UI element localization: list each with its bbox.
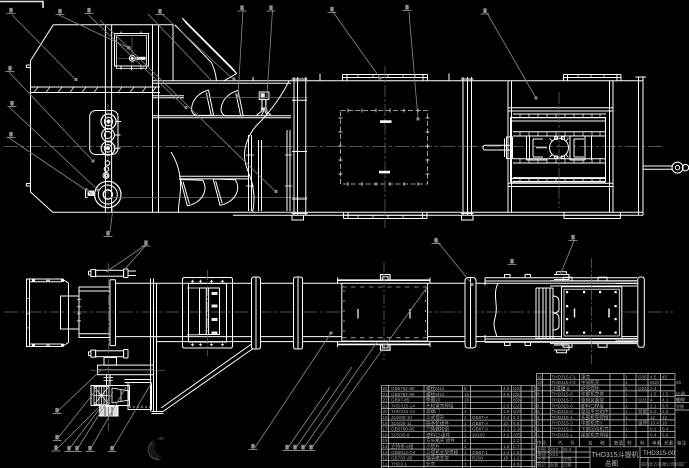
svg-text:1: 1 bbox=[464, 432, 467, 437]
svg-text:Q23: Q23 bbox=[513, 403, 522, 408]
svg-text:8.4: 8.4 bbox=[662, 427, 669, 432]
svg-text:3: 3 bbox=[537, 421, 540, 426]
svg-text:45: 45 bbox=[676, 380, 682, 385]
svg-text:1: 1 bbox=[464, 415, 467, 420]
svg-text:Q23: Q23 bbox=[638, 398, 647, 403]
svg-text:1: 1 bbox=[625, 380, 628, 385]
svg-text:1: 1 bbox=[464, 461, 467, 466]
svg-text:2.4: 2.4 bbox=[650, 386, 657, 391]
svg-text:6.4: 6.4 bbox=[650, 432, 657, 437]
svg-text:1: 1 bbox=[464, 403, 467, 408]
svg-text:20: 20 bbox=[383, 409, 389, 414]
svg-text:1.2: 1.2 bbox=[513, 456, 520, 461]
svg-text:Q23: Q23 bbox=[513, 409, 522, 414]
svg-text:65M: 65M bbox=[513, 398, 522, 403]
svg-text:GB5782-86: GB5782-86 bbox=[391, 386, 415, 391]
svg-text:14: 14 bbox=[383, 444, 389, 449]
svg-text:1.6: 1.6 bbox=[503, 409, 510, 414]
svg-text:5.2: 5.2 bbox=[650, 409, 657, 414]
svg-text:1: 1 bbox=[625, 432, 628, 437]
svg-text:1: 1 bbox=[464, 421, 467, 426]
svg-text:21: 21 bbox=[383, 403, 389, 408]
svg-text:05.6: 05.6 bbox=[563, 447, 572, 452]
svg-text:THD315-7: THD315-7 bbox=[552, 398, 574, 403]
svg-text:GB8T-A: GB8T-A bbox=[472, 415, 489, 420]
svg-text:8: 8 bbox=[537, 392, 540, 397]
svg-text:THD315-2: THD315-2 bbox=[552, 427, 574, 432]
svg-text:205: 205 bbox=[513, 432, 521, 437]
svg-text:1: 1 bbox=[625, 409, 628, 414]
svg-text:数量: 数量 bbox=[614, 440, 624, 447]
svg-text:备注: 备注 bbox=[677, 440, 687, 447]
svg-text:6: 6 bbox=[537, 403, 540, 408]
svg-text:24: 24 bbox=[383, 386, 389, 391]
svg-text:M10: M10 bbox=[650, 380, 659, 385]
svg-text:标记: 标记 bbox=[538, 462, 547, 468]
svg-text:4.1: 4.1 bbox=[662, 398, 669, 403]
svg-text:垫圈: 垫圈 bbox=[676, 403, 684, 409]
svg-text:1.2: 1.2 bbox=[513, 438, 520, 443]
svg-text:总图: 总图 bbox=[605, 459, 618, 468]
svg-text:总重: 总重 bbox=[664, 440, 674, 446]
svg-text:外壳: 外壳 bbox=[426, 460, 436, 467]
svg-text:1: 1 bbox=[625, 415, 628, 420]
svg-text:GB97-85: GB97-85 bbox=[391, 398, 410, 403]
svg-text:材: 材 bbox=[627, 440, 632, 446]
svg-text:GB8T-1: GB8T-1 bbox=[472, 450, 488, 455]
svg-text:1.5: 1.5 bbox=[662, 392, 669, 397]
svg-text:装配: 装配 bbox=[638, 408, 648, 415]
svg-text:称: 称 bbox=[600, 440, 605, 447]
svg-text:2: 2 bbox=[464, 427, 467, 432]
svg-text:5: 5 bbox=[537, 409, 540, 414]
svg-text:4: 4 bbox=[464, 438, 467, 443]
svg-text:18: 18 bbox=[383, 421, 389, 426]
svg-text:1: 1 bbox=[625, 398, 628, 403]
svg-text:2: 2 bbox=[625, 386, 628, 391]
svg-text:THD315-4: THD315-4 bbox=[552, 415, 574, 420]
svg-text:THD315-00: THD315-00 bbox=[643, 450, 676, 457]
svg-text:THD315-1: THD315-1 bbox=[552, 432, 574, 437]
svg-text:2.1: 2.1 bbox=[650, 403, 657, 408]
svg-text:1.5: 1.5 bbox=[650, 392, 657, 397]
svg-text:尾部机壳焊接: 尾部机壳焊接 bbox=[581, 431, 609, 438]
svg-text:THD315-14: THD315-14 bbox=[391, 403, 415, 408]
svg-text:0.7: 0.7 bbox=[513, 444, 520, 449]
svg-text:2.10: 2.10 bbox=[513, 427, 522, 432]
svg-text:11: 11 bbox=[383, 461, 388, 466]
svg-text:THD2-1: THD2-1 bbox=[391, 461, 408, 466]
svg-text:1: 1 bbox=[464, 409, 467, 414]
svg-text:4: 4 bbox=[650, 398, 653, 403]
svg-text:4: 4 bbox=[537, 415, 540, 420]
svg-text:22: 22 bbox=[383, 398, 389, 403]
svg-text:1: 1 bbox=[464, 456, 467, 461]
svg-text:1.5: 1.5 bbox=[503, 444, 510, 449]
svg-text:12: 12 bbox=[662, 415, 668, 420]
svg-text:处数: 处数 bbox=[550, 462, 559, 468]
svg-text:16: 16 bbox=[383, 432, 389, 437]
svg-text:6.2: 6.2 bbox=[513, 415, 520, 420]
svg-text:1: 1 bbox=[464, 450, 467, 455]
svg-text:日期: 日期 bbox=[563, 463, 571, 468]
svg-text:19: 19 bbox=[383, 415, 389, 420]
svg-text:序号: 序号 bbox=[537, 440, 547, 447]
svg-text:16: 16 bbox=[464, 398, 470, 403]
svg-text:4.8: 4.8 bbox=[503, 386, 510, 391]
svg-text:1.6: 1.6 bbox=[513, 450, 520, 455]
svg-text:11: 11 bbox=[537, 374, 542, 379]
svg-text:GB5782-86: GB5782-86 bbox=[391, 392, 415, 397]
svg-text:代: 代 bbox=[558, 440, 563, 447]
svg-text:4.6: 4.6 bbox=[513, 461, 520, 466]
svg-text:10: 10 bbox=[537, 380, 543, 385]
svg-text:2.6: 2.6 bbox=[662, 409, 669, 414]
svg-text:GB5780-86: GB5780-86 bbox=[391, 427, 415, 432]
svg-text:1: 1 bbox=[625, 374, 628, 379]
svg-text:8: 8 bbox=[464, 386, 467, 391]
svg-text:THD315-3: THD315-3 bbox=[552, 421, 574, 426]
svg-text:THD315-5: THD315-5 bbox=[552, 409, 574, 414]
svg-text:7: 7 bbox=[537, 398, 540, 403]
svg-text:GB8812-C4: GB8812-C4 bbox=[391, 450, 416, 455]
svg-text:Q23: Q23 bbox=[513, 386, 522, 391]
svg-text:8.2: 8.2 bbox=[650, 427, 657, 432]
svg-text:1: 1 bbox=[464, 444, 467, 449]
svg-text:13: 13 bbox=[383, 450, 389, 455]
svg-text:315GB-11: 315GB-11 bbox=[391, 421, 412, 426]
svg-text:组焊: 组焊 bbox=[638, 420, 648, 427]
svg-text:12: 12 bbox=[650, 415, 656, 420]
svg-text:料: 料 bbox=[640, 440, 645, 447]
svg-text:20100: 20100 bbox=[472, 432, 485, 437]
svg-text:GB8T-A: GB8T-A bbox=[472, 427, 489, 432]
svg-text:或向北方有限公司制造厂: 或向北方有限公司制造厂 bbox=[641, 461, 687, 468]
svg-text:Q23: Q23 bbox=[513, 392, 522, 397]
svg-text:R200: R200 bbox=[472, 456, 483, 461]
svg-text:315GB-10: 315GB-10 bbox=[391, 415, 412, 420]
svg-text:2: 2 bbox=[537, 427, 540, 432]
svg-text:1: 1 bbox=[625, 421, 628, 426]
svg-text:10: 10 bbox=[662, 421, 668, 426]
svg-text:8.5: 8.5 bbox=[662, 403, 669, 408]
svg-text:Q23: Q23 bbox=[638, 386, 647, 391]
svg-text:THD315-13: THD315-13 bbox=[391, 409, 415, 414]
svg-text:12: 12 bbox=[383, 456, 389, 461]
svg-text:名: 名 bbox=[588, 440, 593, 447]
svg-text:THD315斗提机: THD315斗提机 bbox=[592, 450, 639, 459]
svg-text:10.4: 10.4 bbox=[650, 421, 659, 426]
svg-text:GB703-2B: GB703-2B bbox=[391, 456, 412, 461]
svg-text:10: 10 bbox=[503, 421, 509, 426]
svg-text:15: 15 bbox=[383, 438, 389, 443]
svg-text:Q35: Q35 bbox=[638, 374, 647, 379]
svg-text:1: 1 bbox=[537, 432, 540, 437]
svg-text:4.2: 4.2 bbox=[503, 432, 510, 437]
svg-text:10: 10 bbox=[503, 456, 509, 461]
svg-text:3.2: 3.2 bbox=[503, 415, 510, 420]
svg-text:1: 1 bbox=[625, 427, 628, 432]
svg-text:3.4: 3.4 bbox=[503, 450, 510, 455]
svg-text:THD315-F1: THD315-F1 bbox=[552, 374, 576, 379]
svg-text:315GB-9: 315GB-9 bbox=[391, 432, 410, 437]
svg-text:23: 23 bbox=[383, 392, 389, 397]
svg-text:GB8T-A: GB8T-A bbox=[472, 421, 489, 426]
svg-text:4.5: 4.5 bbox=[650, 374, 657, 379]
svg-text:16: 16 bbox=[464, 392, 470, 397]
svg-text:1: 1 bbox=[625, 392, 628, 397]
svg-text:1.2: 1.2 bbox=[503, 427, 510, 432]
svg-text:THD315-F2: THD315-F2 bbox=[552, 380, 576, 385]
svg-text:17: 17 bbox=[383, 427, 389, 432]
svg-text:工艺: 工艺 bbox=[538, 457, 546, 462]
svg-text:8.5: 8.5 bbox=[513, 421, 520, 426]
svg-text:2.5: 2.5 bbox=[503, 403, 510, 408]
svg-text:XXX: XXX bbox=[550, 452, 559, 457]
svg-text:1: 1 bbox=[625, 403, 628, 408]
svg-text:THD315-6: THD315-6 bbox=[552, 403, 574, 408]
svg-text:THD315-8: THD315-8 bbox=[552, 392, 574, 397]
svg-text:单重: 单重 bbox=[652, 440, 662, 447]
svg-text:45: 45 bbox=[662, 374, 668, 379]
svg-text:6.6: 6.6 bbox=[662, 432, 669, 437]
svg-text:9: 9 bbox=[537, 386, 540, 391]
svg-text:M10: M10 bbox=[676, 397, 685, 402]
svg-text:4.8: 4.8 bbox=[503, 392, 510, 397]
